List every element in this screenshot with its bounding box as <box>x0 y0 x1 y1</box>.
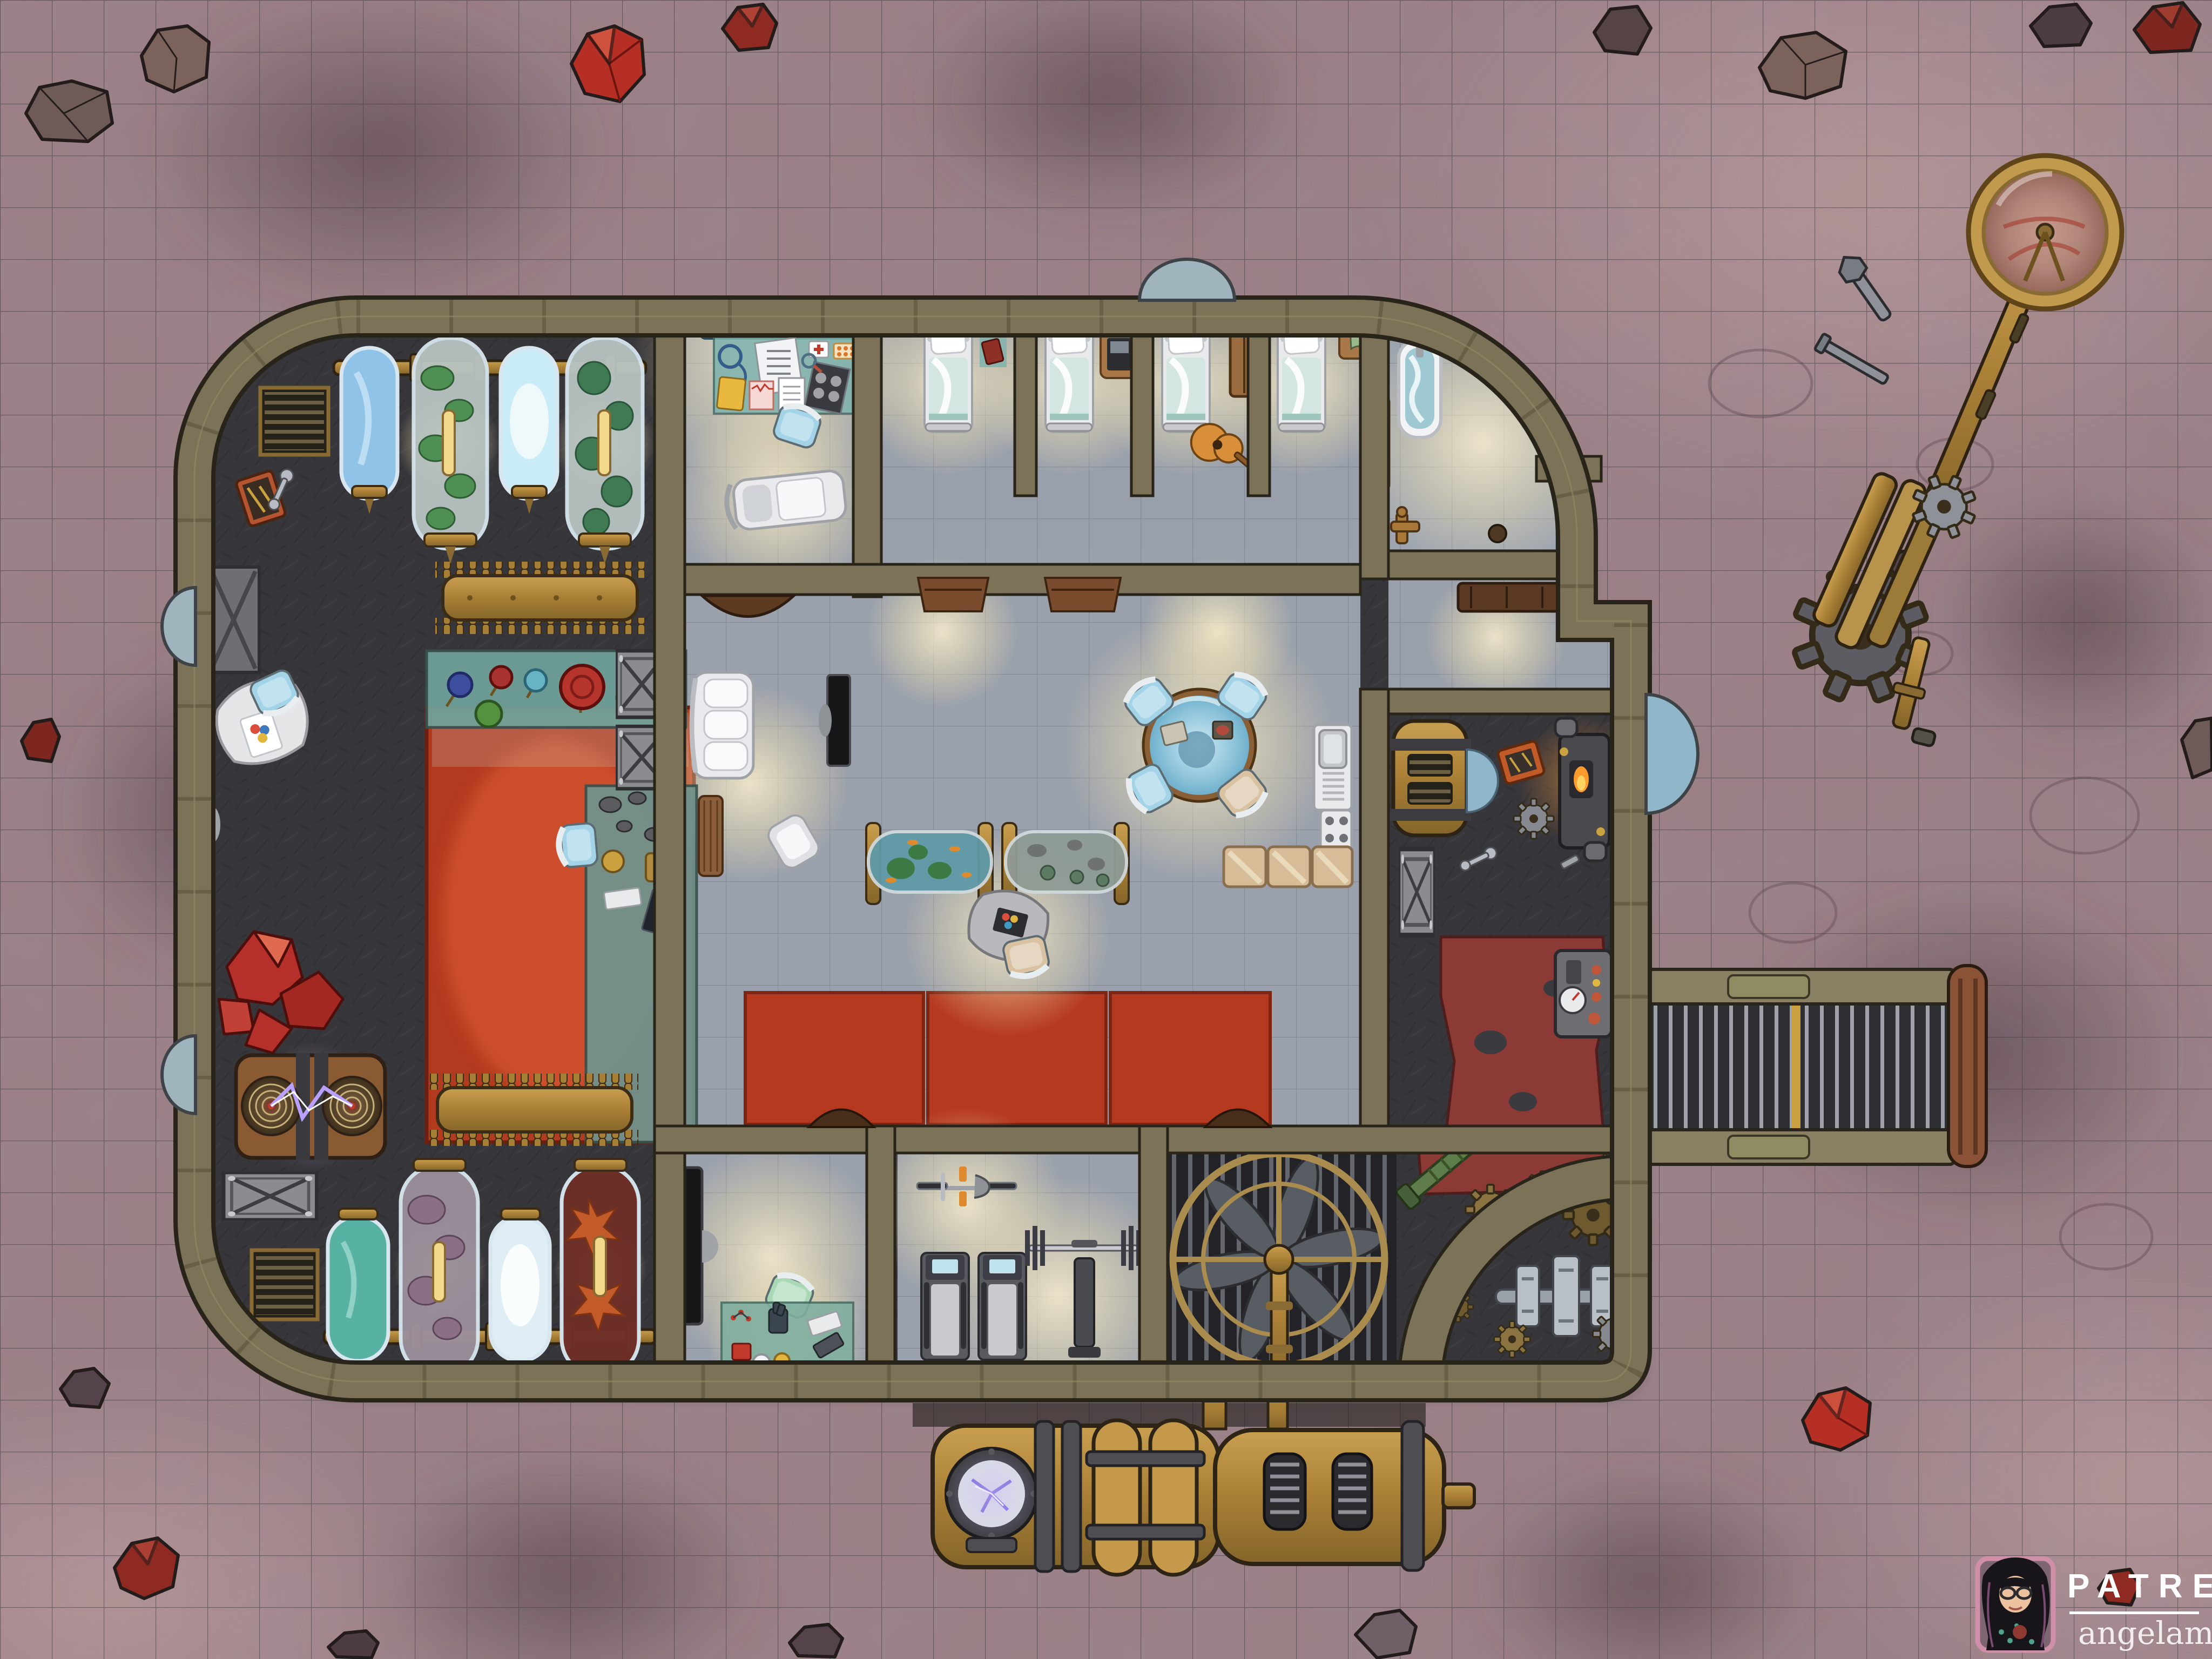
wall <box>853 328 881 597</box>
tesla-coil-pad <box>236 1053 385 1160</box>
clipboard <box>717 377 746 411</box>
wall <box>1374 689 1623 714</box>
loose-gear <box>1514 799 1554 839</box>
wall <box>1360 328 1388 579</box>
stove <box>1320 810 1352 850</box>
flask-blue <box>448 673 472 697</box>
flask-large-red <box>561 665 604 709</box>
medical-desk-mat <box>714 337 859 414</box>
boiler-strap <box>1035 1421 1054 1572</box>
specimen-tube-vines <box>414 338 487 564</box>
floor-drain <box>1489 525 1506 542</box>
specimen-tube-cryo <box>501 348 557 514</box>
watermark-brand: PATREON <box>2067 1568 2212 1605</box>
boiler-pipe-stub <box>1443 1484 1474 1508</box>
boiler-machine <box>913 1388 1474 1575</box>
desk-chair-blue <box>557 822 598 868</box>
grow-lamp <box>594 1237 606 1296</box>
grow-lamp <box>433 1242 445 1301</box>
sofa <box>692 672 753 778</box>
dish <box>1968 156 2122 309</box>
watermark-author: angelamaps <box>2078 1615 2212 1651</box>
specimen-tube-teal <box>328 1209 388 1361</box>
door-threshold <box>918 578 988 611</box>
watermark-divider <box>2069 1611 2199 1614</box>
forge-engine <box>1555 718 1609 861</box>
wall <box>685 564 1360 595</box>
conveyor-belt <box>1608 966 1986 1166</box>
specimen-tube-roses <box>567 338 643 564</box>
metal-crate <box>1400 849 1434 935</box>
specimen-tube-water <box>341 348 397 514</box>
rock <box>26 81 112 141</box>
flask-cyan <box>525 670 547 691</box>
flask-green <box>476 701 502 727</box>
flask-red <box>490 666 512 688</box>
battle-map: PATREON angelamaps <box>0 0 2212 1659</box>
wall <box>1139 1126 1168 1381</box>
fan-room <box>1161 1137 1397 1384</box>
wall <box>655 328 685 1388</box>
watermark: PATREON angelamaps <box>1978 1557 2212 1651</box>
specimen-tube-white <box>490 1209 550 1361</box>
building <box>162 216 1698 1420</box>
red-kit <box>732 1344 751 1360</box>
author-avatar <box>1978 1557 2053 1650</box>
door-threshold <box>1045 578 1121 611</box>
grow-lamp <box>598 410 610 475</box>
control-panel <box>1555 950 1611 1037</box>
specimen-tube-fungus <box>401 1159 478 1375</box>
boiler-tank <box>1150 1420 1197 1575</box>
treadmill <box>979 1253 1026 1360</box>
wood-bench <box>699 796 723 876</box>
radiator <box>429 1074 638 1146</box>
belt-roller-right <box>1948 966 1986 1166</box>
fan-hub <box>1265 1245 1293 1273</box>
specimen-tube-spore <box>562 1159 639 1375</box>
wall <box>867 1126 895 1381</box>
boiler-tank <box>1094 1420 1140 1575</box>
hall-dresser <box>1458 583 1566 611</box>
radiator <box>435 562 644 634</box>
belt-gold-slat <box>1792 1006 1800 1129</box>
bathtub <box>1399 340 1441 437</box>
boiler-strap <box>1062 1421 1081 1572</box>
table-pot <box>1216 725 1229 735</box>
scale-icon <box>602 851 624 872</box>
grow-lamp <box>443 410 455 475</box>
metal-crate <box>224 1173 317 1219</box>
ecg-card <box>750 381 773 409</box>
brass-generator-barrel <box>1389 721 1471 835</box>
treadmill <box>921 1253 969 1360</box>
wall <box>1360 689 1388 1154</box>
